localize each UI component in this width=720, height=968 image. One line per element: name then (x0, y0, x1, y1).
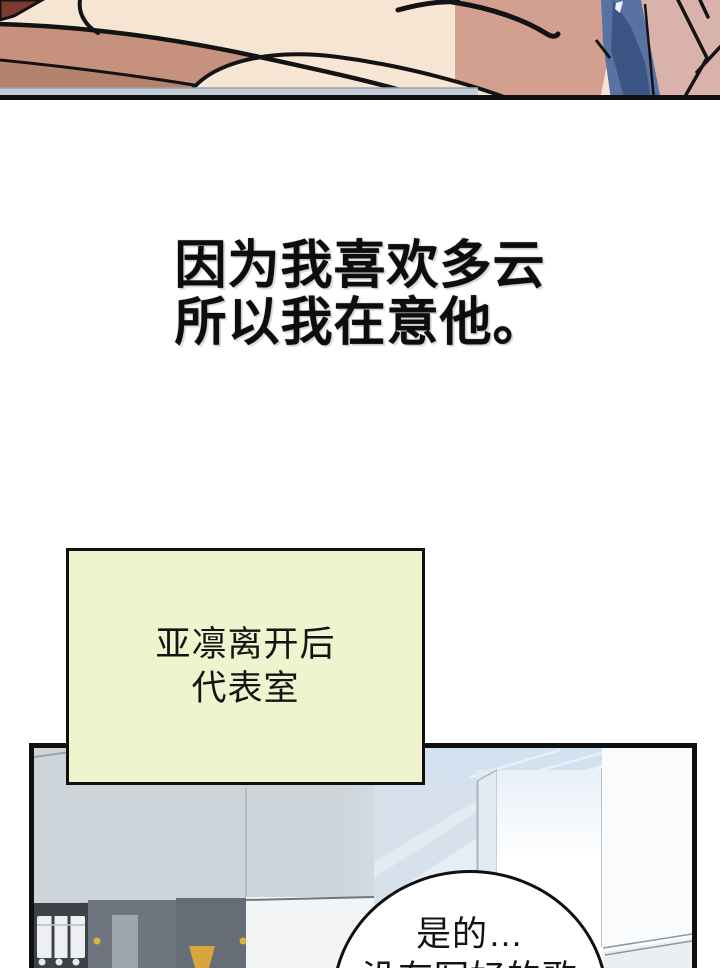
narration-text: 因为我喜欢多云 所以我在意他。 (0, 238, 720, 352)
panel-artwork-top (0, 0, 720, 100)
bubble-line-2: 没有写好的歌 (335, 957, 605, 968)
narration-line-2: 所以我在意他。 (0, 295, 720, 352)
comic-page: 因为我喜欢多云 所以我在意他。 (0, 0, 720, 968)
bubble-line-1: 是的… (335, 913, 605, 957)
caption-box: 亚凛离开后 代表室 (66, 548, 425, 785)
narration-line-1: 因为我喜欢多云 (0, 238, 720, 295)
caption-line-2: 代表室 (191, 667, 299, 711)
caption-line-1: 亚凛离开后 (155, 623, 335, 667)
bedroom-closeup-artwork (0, 0, 720, 100)
